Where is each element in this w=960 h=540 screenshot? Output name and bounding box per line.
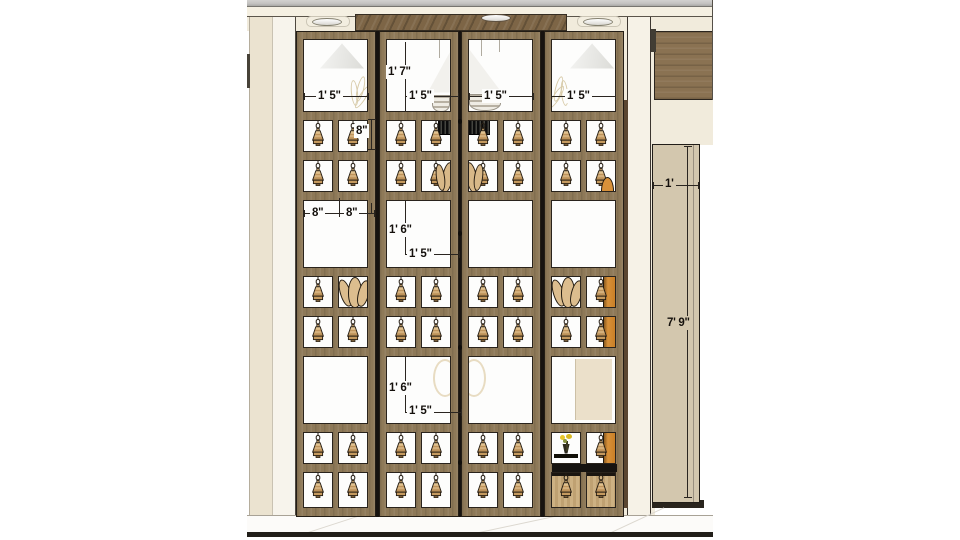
yellow-flower bbox=[566, 434, 572, 439]
bell-cell bbox=[503, 276, 533, 308]
hanging-bell-icon bbox=[428, 433, 444, 460]
bell-cell bbox=[421, 160, 451, 192]
hanging-bell-icon bbox=[393, 121, 409, 148]
bell-cell bbox=[303, 472, 333, 508]
glass-opening bbox=[468, 39, 533, 112]
black-display-shelf bbox=[552, 464, 617, 472]
hanging-bell-icon bbox=[510, 433, 526, 460]
bell-cell bbox=[421, 472, 451, 508]
bell-cell bbox=[338, 160, 368, 192]
hanging-bell-icon bbox=[345, 473, 361, 500]
hanging-bell-icon bbox=[345, 161, 361, 188]
hanging-bell-icon bbox=[558, 473, 574, 500]
bell-cell bbox=[468, 472, 498, 508]
hanging-bell-icon bbox=[593, 473, 609, 500]
hanging-bell-icon bbox=[345, 121, 361, 148]
hanging-bell-icon bbox=[393, 473, 409, 500]
hanging-bell-icon bbox=[510, 277, 526, 304]
bell-cell bbox=[468, 432, 498, 464]
hanging-bell-icon bbox=[428, 121, 444, 148]
left-wall-column bbox=[249, 17, 272, 517]
glass-opening bbox=[303, 356, 368, 424]
bell-cell bbox=[386, 472, 416, 508]
hanging-bell-icon bbox=[593, 433, 609, 460]
leaf bbox=[563, 439, 567, 443]
bell-cell bbox=[586, 432, 616, 464]
hanging-bell-icon bbox=[310, 433, 326, 460]
bell-cell bbox=[468, 316, 498, 348]
chandelier-shade-silhouette bbox=[428, 53, 450, 93]
marble-floor bbox=[247, 515, 713, 532]
screen-panel-3 bbox=[461, 31, 541, 517]
hanging-bell-icon bbox=[393, 433, 409, 460]
hanging-bell-icon bbox=[393, 277, 409, 304]
chandelier-basket bbox=[469, 94, 501, 111]
bell-cell bbox=[586, 316, 616, 348]
orange-door-arc bbox=[601, 177, 614, 191]
chandelier-cord bbox=[439, 40, 440, 58]
ceiling-light-icon bbox=[312, 18, 342, 26]
hanging-bell-icon bbox=[510, 473, 526, 500]
screen-panel-2 bbox=[379, 31, 459, 517]
bell-cell bbox=[586, 472, 616, 508]
hanging-bell-icon bbox=[428, 317, 444, 344]
hanging-bell-icon bbox=[475, 121, 491, 148]
hanging-bell-icon bbox=[593, 121, 609, 148]
side-panel-edge-line bbox=[693, 145, 694, 502]
bell-cell bbox=[421, 432, 451, 464]
right-pilaster bbox=[627, 17, 651, 517]
hanging-bell-icon bbox=[558, 121, 574, 148]
bell-cell bbox=[303, 432, 333, 464]
hanging-bell-icon bbox=[558, 161, 574, 188]
bell-cell bbox=[303, 316, 333, 348]
hanging-bell-icon bbox=[593, 317, 609, 344]
hanging-bell-icon bbox=[475, 433, 491, 460]
elevation-drawing: 1' 7" 1' 5" 1' 5" 1' 5" 1' 5" 8" 8" 8" bbox=[0, 0, 960, 540]
bell-cell bbox=[503, 316, 533, 348]
bell-cell bbox=[421, 276, 451, 308]
glass-opening bbox=[468, 356, 533, 424]
glass-opening bbox=[551, 39, 616, 112]
bell-cell bbox=[338, 120, 368, 152]
glass-opening bbox=[386, 39, 451, 112]
left-pilaster bbox=[272, 17, 296, 517]
hanging-bell-icon bbox=[558, 317, 574, 344]
glass-opening bbox=[303, 200, 368, 268]
chandelier-cord bbox=[481, 40, 482, 56]
bell-cell bbox=[303, 160, 333, 192]
hanging-bell-icon bbox=[345, 433, 361, 460]
left-wall-edge-shadow bbox=[247, 54, 250, 88]
hanging-bell-icon bbox=[510, 121, 526, 148]
bell-cell bbox=[468, 276, 498, 308]
glass-opening bbox=[386, 356, 451, 424]
lamp-shade-silhouette bbox=[570, 44, 614, 69]
hanging-bell-icon bbox=[475, 317, 491, 344]
bell-cell bbox=[468, 120, 498, 152]
bell-cell bbox=[421, 120, 451, 152]
glass-opening bbox=[386, 200, 451, 268]
glass-opening bbox=[303, 39, 368, 112]
bell-cell bbox=[586, 276, 616, 308]
bell-cell bbox=[551, 316, 581, 348]
bell-cell bbox=[386, 316, 416, 348]
bell-cell bbox=[338, 276, 368, 308]
bell-cell bbox=[586, 160, 616, 192]
bell-cell bbox=[551, 432, 581, 464]
hanging-bell-icon bbox=[510, 161, 526, 188]
ceiling-light-icon bbox=[481, 14, 511, 22]
bell-cell bbox=[338, 472, 368, 508]
chandelier-basket bbox=[432, 95, 450, 112]
hanging-bell-icon bbox=[428, 277, 444, 304]
bell-cell bbox=[503, 472, 533, 508]
bell-cell bbox=[503, 160, 533, 192]
side-return-panel bbox=[652, 144, 700, 503]
bell-cell bbox=[586, 120, 616, 152]
right-edge-line bbox=[712, 0, 714, 100]
hanging-bell-icon bbox=[310, 121, 326, 148]
bell-cell bbox=[503, 432, 533, 464]
hanging-bell-icon bbox=[475, 277, 491, 304]
bell-cell bbox=[386, 432, 416, 464]
floor-baseline bbox=[247, 532, 713, 537]
hanging-bell-icon bbox=[345, 317, 361, 344]
bell-cell bbox=[338, 432, 368, 464]
bell-cell bbox=[551, 276, 581, 308]
bell-cell bbox=[303, 120, 333, 152]
bell-cell bbox=[303, 276, 333, 308]
chandelier-cord bbox=[499, 40, 500, 52]
bell-screen bbox=[296, 31, 624, 517]
right-wood-cladding-panel bbox=[654, 31, 713, 100]
bell-cell bbox=[551, 472, 581, 508]
glass-opening bbox=[551, 356, 616, 424]
hanging-bell-icon bbox=[510, 317, 526, 344]
bell-cell bbox=[386, 276, 416, 308]
hanging-bell-icon bbox=[475, 473, 491, 500]
chevron-wood-header bbox=[355, 14, 567, 31]
hanging-bell-icon bbox=[593, 277, 609, 304]
hanging-bell-icon bbox=[393, 317, 409, 344]
lamp-shade-silhouette bbox=[320, 44, 364, 69]
bell-cell bbox=[551, 160, 581, 192]
hanging-bell-icon bbox=[310, 317, 326, 344]
hanging-bell-icon bbox=[428, 473, 444, 500]
chandelier-shade-silhouette bbox=[469, 50, 502, 94]
bell-cell bbox=[551, 120, 581, 152]
hanging-bell-icon bbox=[310, 277, 326, 304]
bell-cell bbox=[386, 120, 416, 152]
hanging-bell-icon bbox=[310, 161, 326, 188]
screen-panel-1 bbox=[296, 31, 376, 517]
bell-cell bbox=[386, 160, 416, 192]
ceiling-light-icon bbox=[583, 18, 613, 26]
bell-cell bbox=[338, 316, 368, 348]
hanging-bell-icon bbox=[310, 473, 326, 500]
hanging-bell-icon bbox=[393, 161, 409, 188]
bell-cell bbox=[421, 316, 451, 348]
bell-cell bbox=[503, 120, 533, 152]
ceiling-gray-strip bbox=[247, 0, 713, 7]
reflection-arc bbox=[433, 359, 451, 397]
door-reflection bbox=[575, 359, 613, 420]
glass-opening bbox=[551, 200, 616, 268]
glass-opening bbox=[468, 200, 533, 268]
reflection-arc bbox=[468, 359, 486, 397]
vase-shelf bbox=[554, 454, 579, 458]
bell-cell bbox=[468, 160, 498, 192]
screen-panel-4 bbox=[544, 31, 624, 517]
